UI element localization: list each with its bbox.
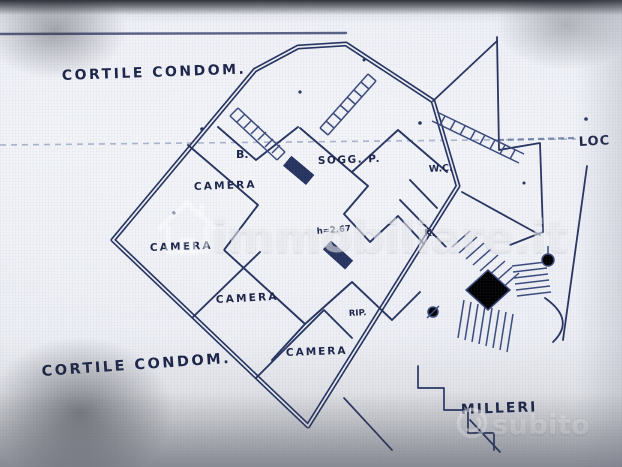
dashed-boundary-line xyxy=(0,139,576,145)
diameter-symbol xyxy=(427,306,439,318)
label-wc: W.C. xyxy=(429,163,453,175)
label-bagno: B. xyxy=(236,148,249,161)
solid-wall-mark-1 xyxy=(283,156,314,185)
floor-plan-drawing: CORTILE CONDOM. CORTILE CONDOM. B. CAMER… xyxy=(0,0,622,467)
label-camera-bottom: CAMERA xyxy=(286,345,348,359)
boundary-line-top xyxy=(0,33,346,34)
immobiliare-watermark-text: immobiliare.it xyxy=(212,210,568,263)
label-loc-partial: LOC xyxy=(578,133,610,150)
hatch-band-upper-center xyxy=(320,74,376,135)
stair-landing xyxy=(466,270,510,310)
floorplan-photo: CORTILE CONDOM. CORTILE CONDOM. B. CAMER… xyxy=(0,0,622,467)
label-camera-mid: CAMERA xyxy=(216,291,279,306)
label-ripostiglio: RIP. xyxy=(349,308,367,319)
label-camera-top: CAMERA xyxy=(194,179,257,193)
immobiliare-watermark: immobiliare.it xyxy=(160,203,568,263)
label-cortile-top: CORTILE CONDOM. xyxy=(62,62,247,84)
label-soggiorno: SOGG. P. xyxy=(318,153,382,167)
label-cortile-bottom: CORTILE CONDOM. xyxy=(41,351,232,380)
subito-watermark-text: subito xyxy=(492,410,590,441)
